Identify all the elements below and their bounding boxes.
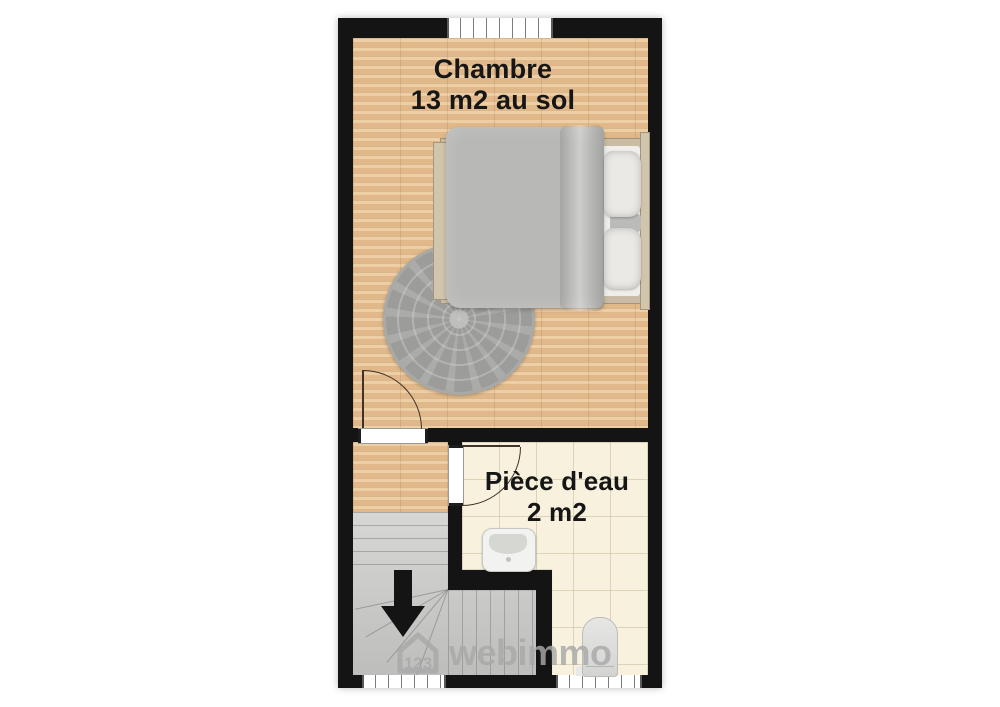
window-bottom-left: [362, 675, 446, 688]
bathroom-label: Pièce d'eau 2 m2: [462, 466, 652, 528]
bedroom-door-opening: [358, 428, 428, 444]
bed-duvet: [446, 127, 604, 308]
bathroom-name: Pièce d'eau: [462, 466, 652, 497]
floor-plan-canvas: Chambre 13 m2 au sol Pièce d'eau 2 m2 12…: [0, 0, 1000, 707]
pillow: [604, 228, 641, 289]
landing-floor: [353, 442, 448, 512]
watermark-number: 123: [404, 654, 432, 673]
pillow: [604, 151, 641, 217]
sink-bowl: [489, 534, 527, 554]
stairs-down-arrow-icon: [394, 570, 412, 608]
watermark-brand: webimmo: [449, 630, 612, 676]
stair-treads-upper: [353, 512, 448, 572]
sink: [482, 528, 536, 572]
window-top-wall: [447, 18, 553, 38]
bathroom-area: 2 m2: [462, 497, 652, 528]
floor-plan: Chambre 13 m2 au sol Pièce d'eau 2 m2 12…: [338, 18, 662, 688]
bedroom-area: 13 m2 au sol: [348, 85, 638, 116]
bedroom-name: Chambre: [348, 54, 638, 85]
bedroom-label: Chambre 13 m2 au sol: [348, 54, 638, 116]
bed-duvet-fold: [560, 125, 604, 311]
watermark-house-icon: 123: [393, 630, 443, 676]
sink-drain: [506, 557, 511, 562]
watermark: 123 webimmo: [393, 630, 612, 676]
bed-headboard: [640, 132, 650, 310]
